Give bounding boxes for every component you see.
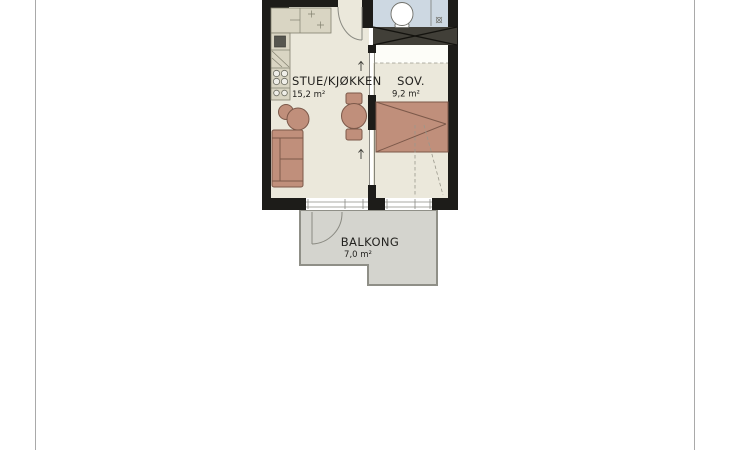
balcony-label: BALKONG [341,235,399,249]
balcony-area: 7,0 m² [344,250,372,260]
plan-sheet: STUE/KJØKKEN 15,2 m² SOV. 9,2 m² BALKONG… [0,0,730,450]
bedroom-label: SOV. [397,74,425,88]
wall-left [262,0,271,210]
window-bedroom [385,198,432,210]
dining-chair [346,129,362,140]
bedroom-area: 9,2 m² [392,90,420,100]
living-room-label: STUE/KJØKKEN [292,74,382,88]
bedroom-entry-strip [373,45,448,63]
wall-bottom-middle [368,198,385,210]
bed [376,102,448,152]
wall-living-bedroom [368,45,376,198]
living-room-area: 15,2 m² [292,90,325,100]
floor-plan: STUE/KJØKKEN 15,2 m² SOV. 9,2 m² BALKONG… [0,0,730,450]
window-living-balcony [306,198,368,210]
wardrobe-block [373,27,457,45]
dining-table [342,104,367,129]
sofa [272,130,303,187]
dining-chair [346,93,362,104]
wall-bathroom-left [362,0,373,28]
